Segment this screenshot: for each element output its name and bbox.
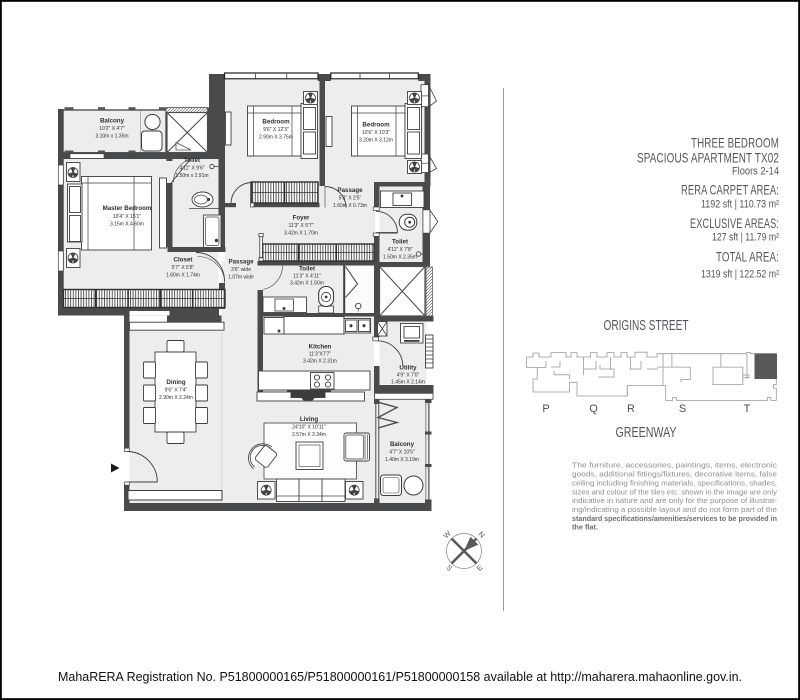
svg-text:4'9" X 7'0": 4'9" X 7'0"	[397, 373, 420, 379]
svg-text:10'4" X 15'1": 10'4" X 15'1"	[113, 214, 141, 220]
svg-text:Passage: Passage	[228, 259, 254, 266]
svg-text:Utility: Utility	[399, 365, 417, 372]
svg-text:3.10m x 1.35m: 3.10m x 1.35m	[95, 134, 128, 140]
svg-text:10'2" X 4'7": 10'2" X 4'7"	[99, 126, 125, 132]
svg-text:MahaRERA Registration No. P518: MahaRERA Registration No. P51800000165/P…	[58, 669, 742, 684]
svg-text:1.50m x 2.91m: 1.50m x 2.91m	[175, 173, 208, 179]
svg-text:3.42m X 2.31m: 3.42m X 2.31m	[303, 359, 337, 365]
svg-text:Bedroom: Bedroom	[262, 119, 290, 126]
svg-text:11'3" X 4'11": 11'3" X 4'11"	[293, 274, 321, 280]
svg-text:GREENWAY: GREENWAY	[616, 424, 677, 441]
svg-text:RERA CARPET AREA:: RERA CARPET AREA:	[681, 183, 779, 198]
svg-text:3.42m X 1.70m: 3.42m X 1.70m	[284, 231, 318, 237]
svg-text:1.40m X 3.19m: 1.40m X 3.19m	[385, 457, 419, 463]
svg-text:Closet: Closet	[174, 257, 193, 264]
svg-text:T: T	[744, 403, 751, 415]
svg-text:goods, additional fittings/fix: goods, additional fittings/fixtures, dec…	[572, 470, 777, 479]
svg-text:Balcony: Balcony	[100, 118, 125, 125]
svg-text:Bedroom: Bedroom	[362, 122, 390, 129]
svg-text:10'6" X 10'3": 10'6" X 10'3"	[362, 130, 390, 136]
svg-text:5'7" X 5'8": 5'7" X 5'8"	[172, 265, 195, 271]
svg-text:sizes and colour of the tiles: sizes and colour of the tiles etc. shown…	[572, 487, 777, 496]
svg-text:11'3" X 5'7": 11'3" X 5'7"	[288, 223, 313, 229]
svg-text:Passage: Passage	[337, 187, 363, 194]
svg-text:9'6" X 7'4": 9'6" X 7'4"	[165, 388, 188, 394]
svg-text:24'10" X 10'11": 24'10" X 10'11"	[292, 425, 326, 431]
svg-text:1.45m X 2.14m: 1.45m X 2.14m	[391, 380, 425, 386]
svg-text:4'7" X 10'5": 4'7" X 10'5"	[389, 450, 415, 456]
svg-text:1.50m X 2.35m: 1.50m X 2.35m	[383, 255, 417, 261]
svg-text:Toilet: Toilet	[392, 239, 408, 246]
svg-text:Floors 2-14: Floors 2-14	[732, 166, 779, 178]
svg-text:ing/indicating a possible layo: ing/indicating a possible layout and do …	[572, 505, 777, 514]
svg-text:1319 sft | 122.52 m²: 1319 sft | 122.52 m²	[701, 269, 779, 281]
svg-text:11'3"X7'7": 11'3"X7'7"	[309, 352, 332, 358]
svg-text:1.07m wide: 1.07m wide	[228, 275, 254, 281]
svg-text:the flat.: the flat.	[572, 523, 598, 532]
svg-text:S: S	[679, 403, 686, 415]
svg-text:EXCLUSIVE AREAS:: EXCLUSIVE AREAS:	[690, 216, 779, 231]
svg-text:Q: Q	[589, 403, 598, 415]
svg-text:ceiling including finishing ma: ceiling including finishing materials, s…	[572, 478, 777, 487]
svg-text:3.42m X 1.50m: 3.42m X 1.50m	[290, 281, 324, 287]
svg-text:The furniture, accessories, pa: The furniture, accessories, paintings, i…	[572, 461, 777, 470]
svg-text:4'11" X 9'6": 4'11" X 9'6"	[179, 166, 204, 172]
svg-text:Toilet: Toilet	[299, 266, 315, 273]
svg-text:P: P	[542, 403, 549, 415]
svg-text:2.57m X 3.34m: 2.57m X 3.34m	[292, 432, 326, 438]
svg-text:3.15m X 4.60m: 3.15m X 4.60m	[110, 222, 144, 228]
svg-text:Living: Living	[300, 416, 318, 423]
svg-text:standard specifications/amenit: standard specifications/amenities/servic…	[572, 514, 777, 523]
svg-text:Master Bedroom: Master Bedroom	[103, 205, 152, 212]
svg-text:Toilet: Toilet	[184, 157, 200, 164]
svg-text:Foyer: Foyer	[293, 215, 310, 222]
svg-text:127 sft | 11.79 m²: 127 sft | 11.79 m²	[712, 232, 779, 244]
svg-text:4'11" X 7'8": 4'11" X 7'8"	[387, 247, 412, 253]
svg-text:2.90m X 2.24m: 2.90m X 2.24m	[159, 395, 193, 401]
svg-text:THREE BEDROOM: THREE BEDROOM	[691, 136, 779, 151]
svg-text:9'6" X 12'3": 9'6" X 12'3"	[263, 127, 289, 133]
svg-text:Dining: Dining	[166, 379, 185, 386]
svg-text:1.60m X 1.74m: 1.60m X 1.74m	[166, 273, 200, 279]
svg-text:TOTAL AREA:: TOTAL AREA:	[716, 250, 779, 265]
svg-text:SPACIOUS APARTMENT TX02: SPACIOUS APARTMENT TX02	[637, 151, 779, 166]
svg-text:Kitchen: Kitchen	[309, 344, 332, 351]
svg-text:2.90m X 3.75m: 2.90m X 3.75m	[259, 135, 293, 141]
svg-text:ORIGINS STREET: ORIGINS STREET	[604, 318, 689, 334]
svg-text:R: R	[627, 403, 635, 415]
svg-text:5'3" X 2'5": 5'3" X 2'5"	[339, 196, 362, 202]
svg-text:indicative in nature and are o: indicative in nature and are only for th…	[572, 496, 778, 505]
svg-text:3.20m X 3.12m: 3.20m X 3.12m	[359, 138, 393, 144]
svg-text:Balcony: Balcony	[390, 441, 415, 448]
svg-text:1.60m X 0.73m: 1.60m X 0.73m	[333, 203, 367, 209]
svg-text:1192 sft | 110.73 m²: 1192 sft | 110.73 m²	[701, 199, 779, 211]
svg-text:3'6" wide: 3'6" wide	[231, 267, 251, 273]
